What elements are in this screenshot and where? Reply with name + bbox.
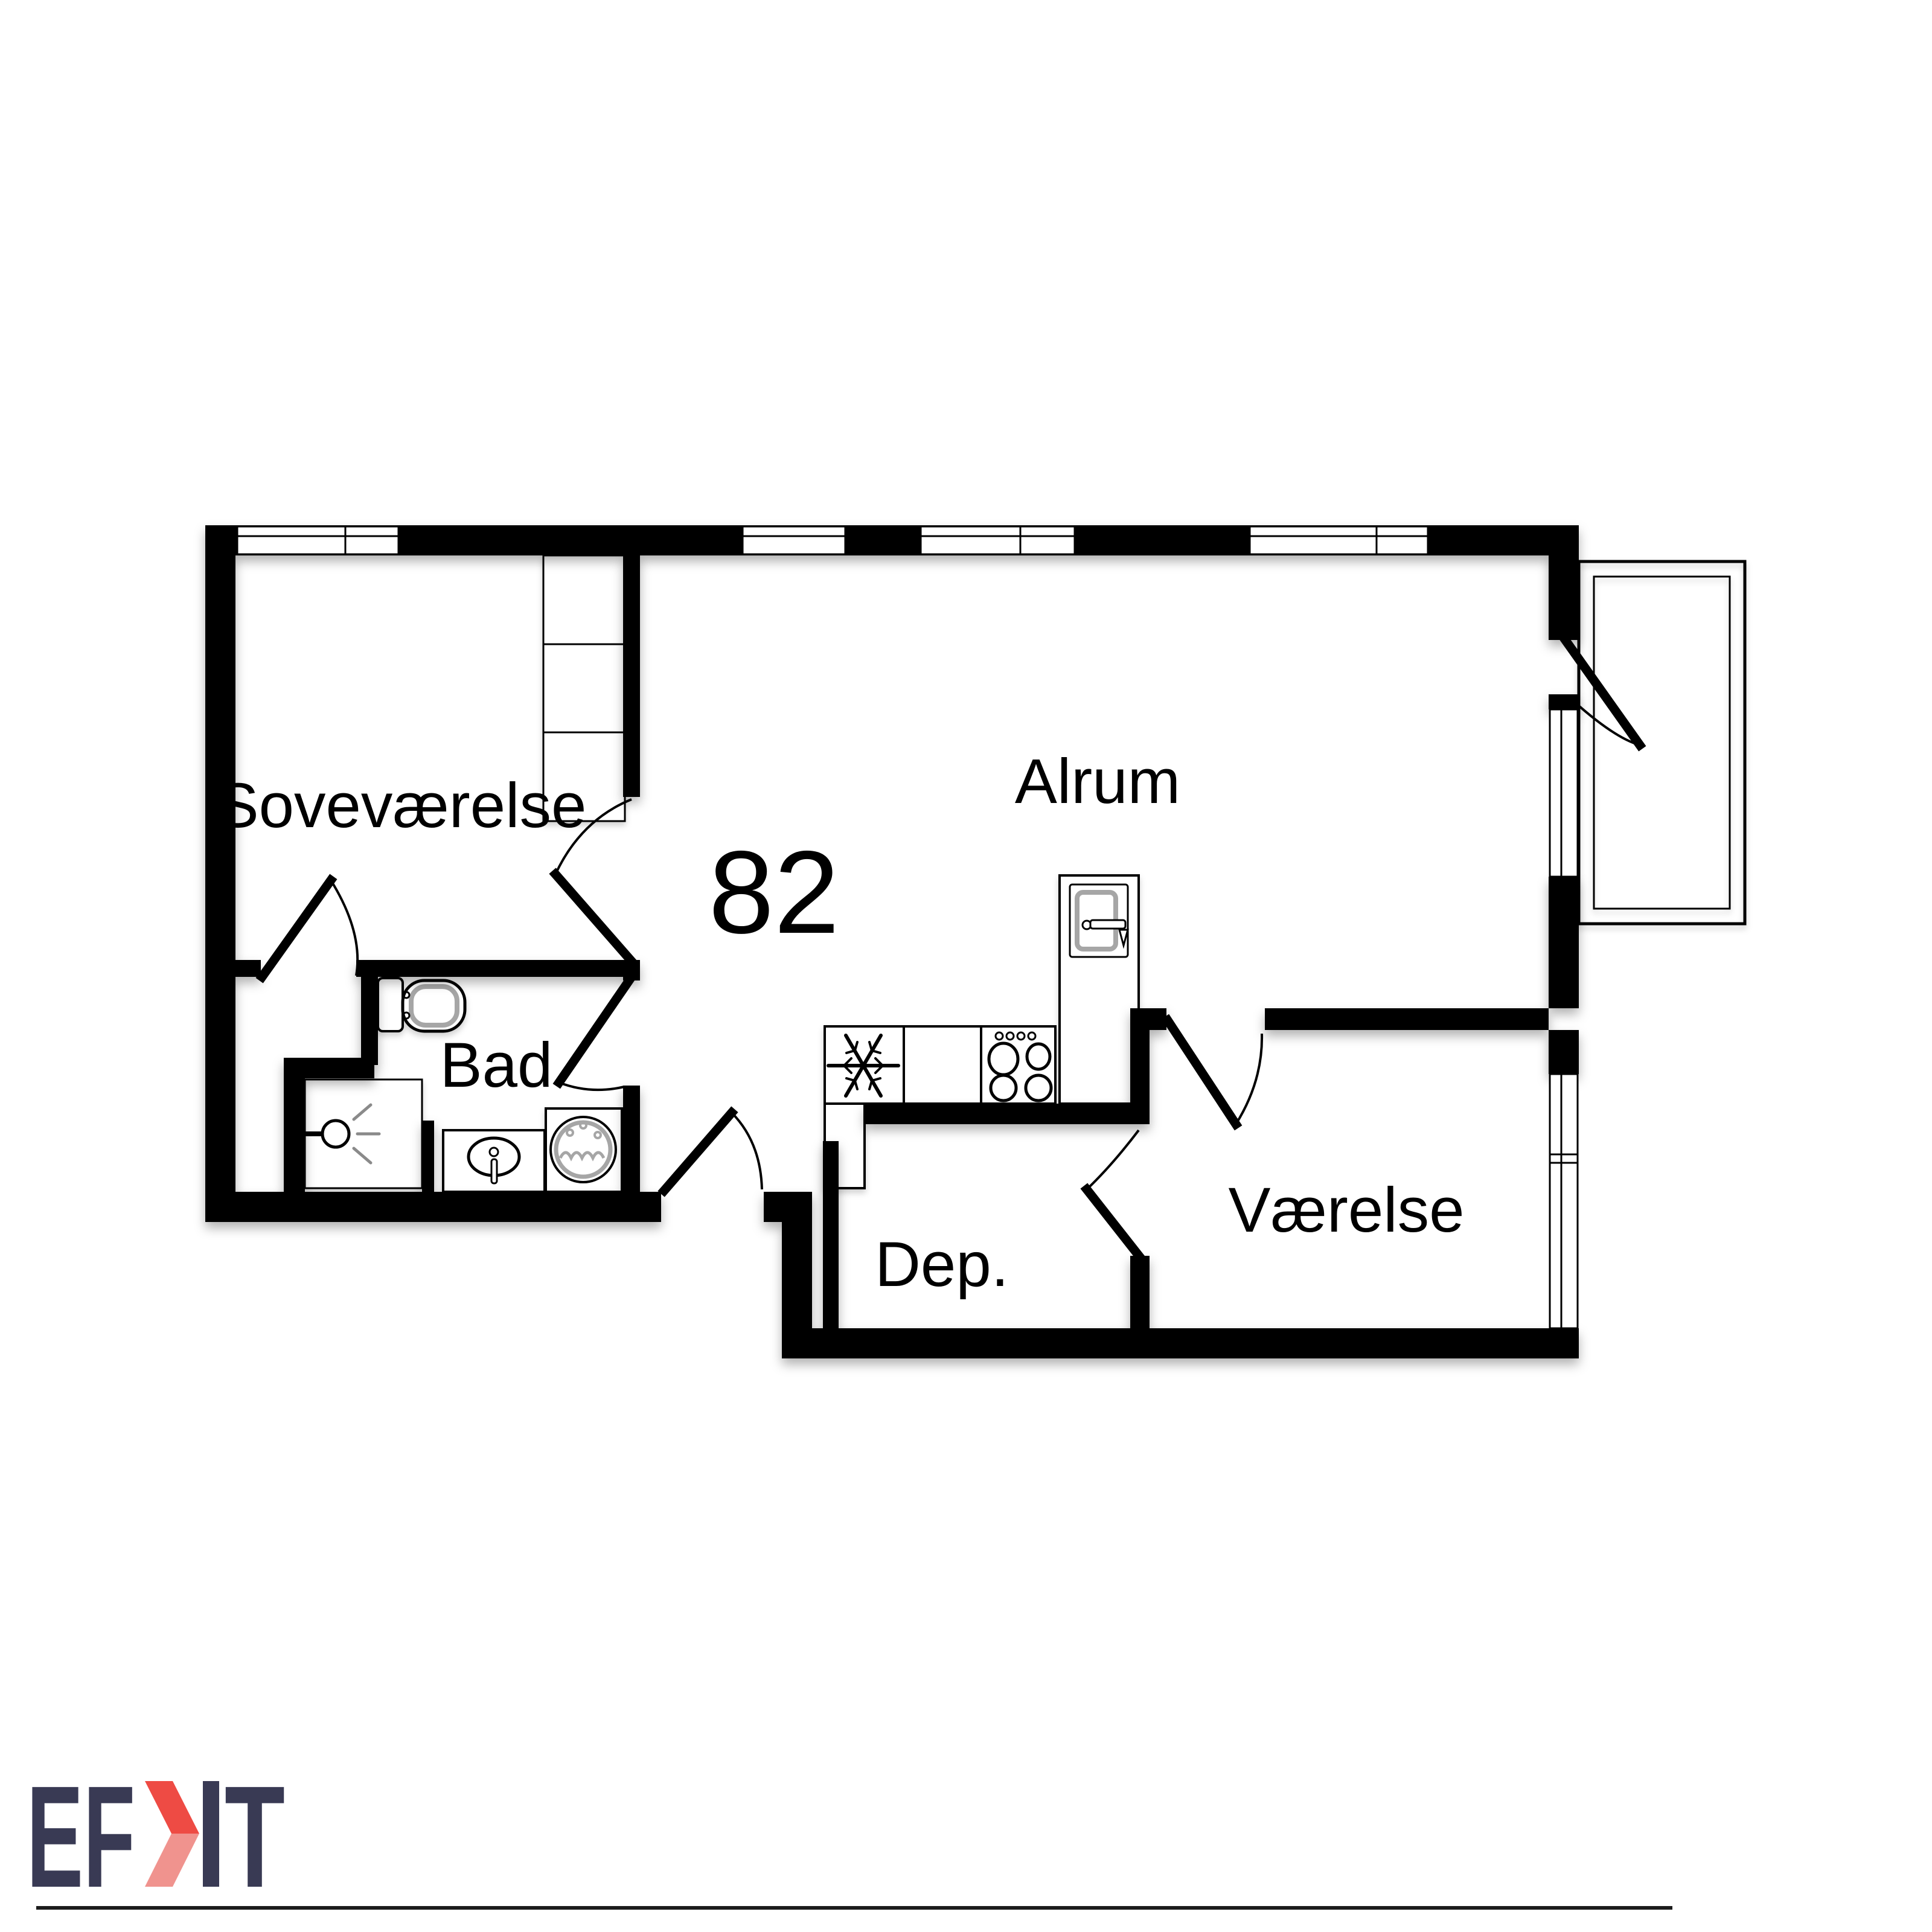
kitchen-sink-icon <box>1070 884 1128 957</box>
label-bad: Bad <box>440 1030 553 1101</box>
shower-head-icon <box>305 1080 422 1188</box>
door-entrance <box>664 1113 762 1191</box>
efkt-logo: EF T <box>27 1756 285 1918</box>
label-area-number: 82 <box>709 827 840 958</box>
wall-right-3 <box>1549 877 1579 1008</box>
window-living-2 <box>921 526 1075 554</box>
window-living-3 <box>1250 526 1428 554</box>
wall-bath-right <box>623 1086 640 1192</box>
floorplan-page: Soveværelse Alrum 82 Bad Dep. Værelse EF… <box>0 0 1932 1932</box>
label-sovevaerelse: Soveværelse <box>217 770 587 841</box>
wall-right-4 <box>1549 1030 1579 1074</box>
window-living-1 <box>743 526 845 554</box>
door-bath <box>559 980 629 1090</box>
wall-right-1 <box>1549 555 1579 640</box>
wall-dep-divider <box>1130 1256 1150 1328</box>
kitchen-island <box>1060 875 1139 1104</box>
wall-bath-inner-left <box>361 977 378 1065</box>
balcony-outline <box>1579 561 1745 924</box>
door-vaerelse <box>1168 1020 1262 1124</box>
wall-shower-left <box>284 1078 305 1192</box>
washbasin-icon <box>443 1130 545 1192</box>
window-bedroom <box>237 526 398 554</box>
door-dep <box>1087 1130 1140 1257</box>
wall-dep-thin <box>823 1141 839 1328</box>
wall-entry-jamb <box>764 1192 812 1222</box>
wall-bedroom-divider-upper <box>623 555 640 797</box>
wall-bath-bottom <box>205 1192 661 1222</box>
logo-text-ef: EF <box>27 1756 135 1918</box>
label-alrum: Alrum <box>1015 746 1180 817</box>
logo-text-t: T <box>225 1756 285 1918</box>
toilet-icon <box>378 978 465 1031</box>
wall-left <box>205 525 235 1222</box>
footer: EF T Vejledende tegning uden ansvar <box>27 1756 1672 1932</box>
wall-livingroom-divider-stub <box>1130 1008 1166 1030</box>
floorplan-canvas: Soveværelse Alrum 82 Bad Dep. Værelse EF… <box>0 0 1932 1932</box>
logo-chevron-upper <box>145 1781 199 1834</box>
label-vaerelse: Værelse <box>1229 1175 1465 1246</box>
wall-bedroom-bottom <box>356 960 623 977</box>
window-vaerelse <box>1550 1074 1578 1328</box>
washing-machine-icon <box>546 1108 622 1192</box>
wall-bedroom-bottom-stub <box>235 960 261 977</box>
window-balcony-side <box>1550 709 1578 877</box>
wall-kitchen-bottom <box>865 1104 1150 1124</box>
logo-chevron-lower <box>145 1834 199 1887</box>
label-dep: Dep. <box>875 1229 1009 1300</box>
wall-livingroom-divider <box>1265 1008 1549 1030</box>
door-hall-bedroom <box>262 880 357 977</box>
wall-shower-top <box>284 1058 374 1078</box>
wall-shower-right <box>422 1121 434 1192</box>
wall-bottom <box>782 1328 1579 1358</box>
logo-bar <box>203 1781 219 1887</box>
